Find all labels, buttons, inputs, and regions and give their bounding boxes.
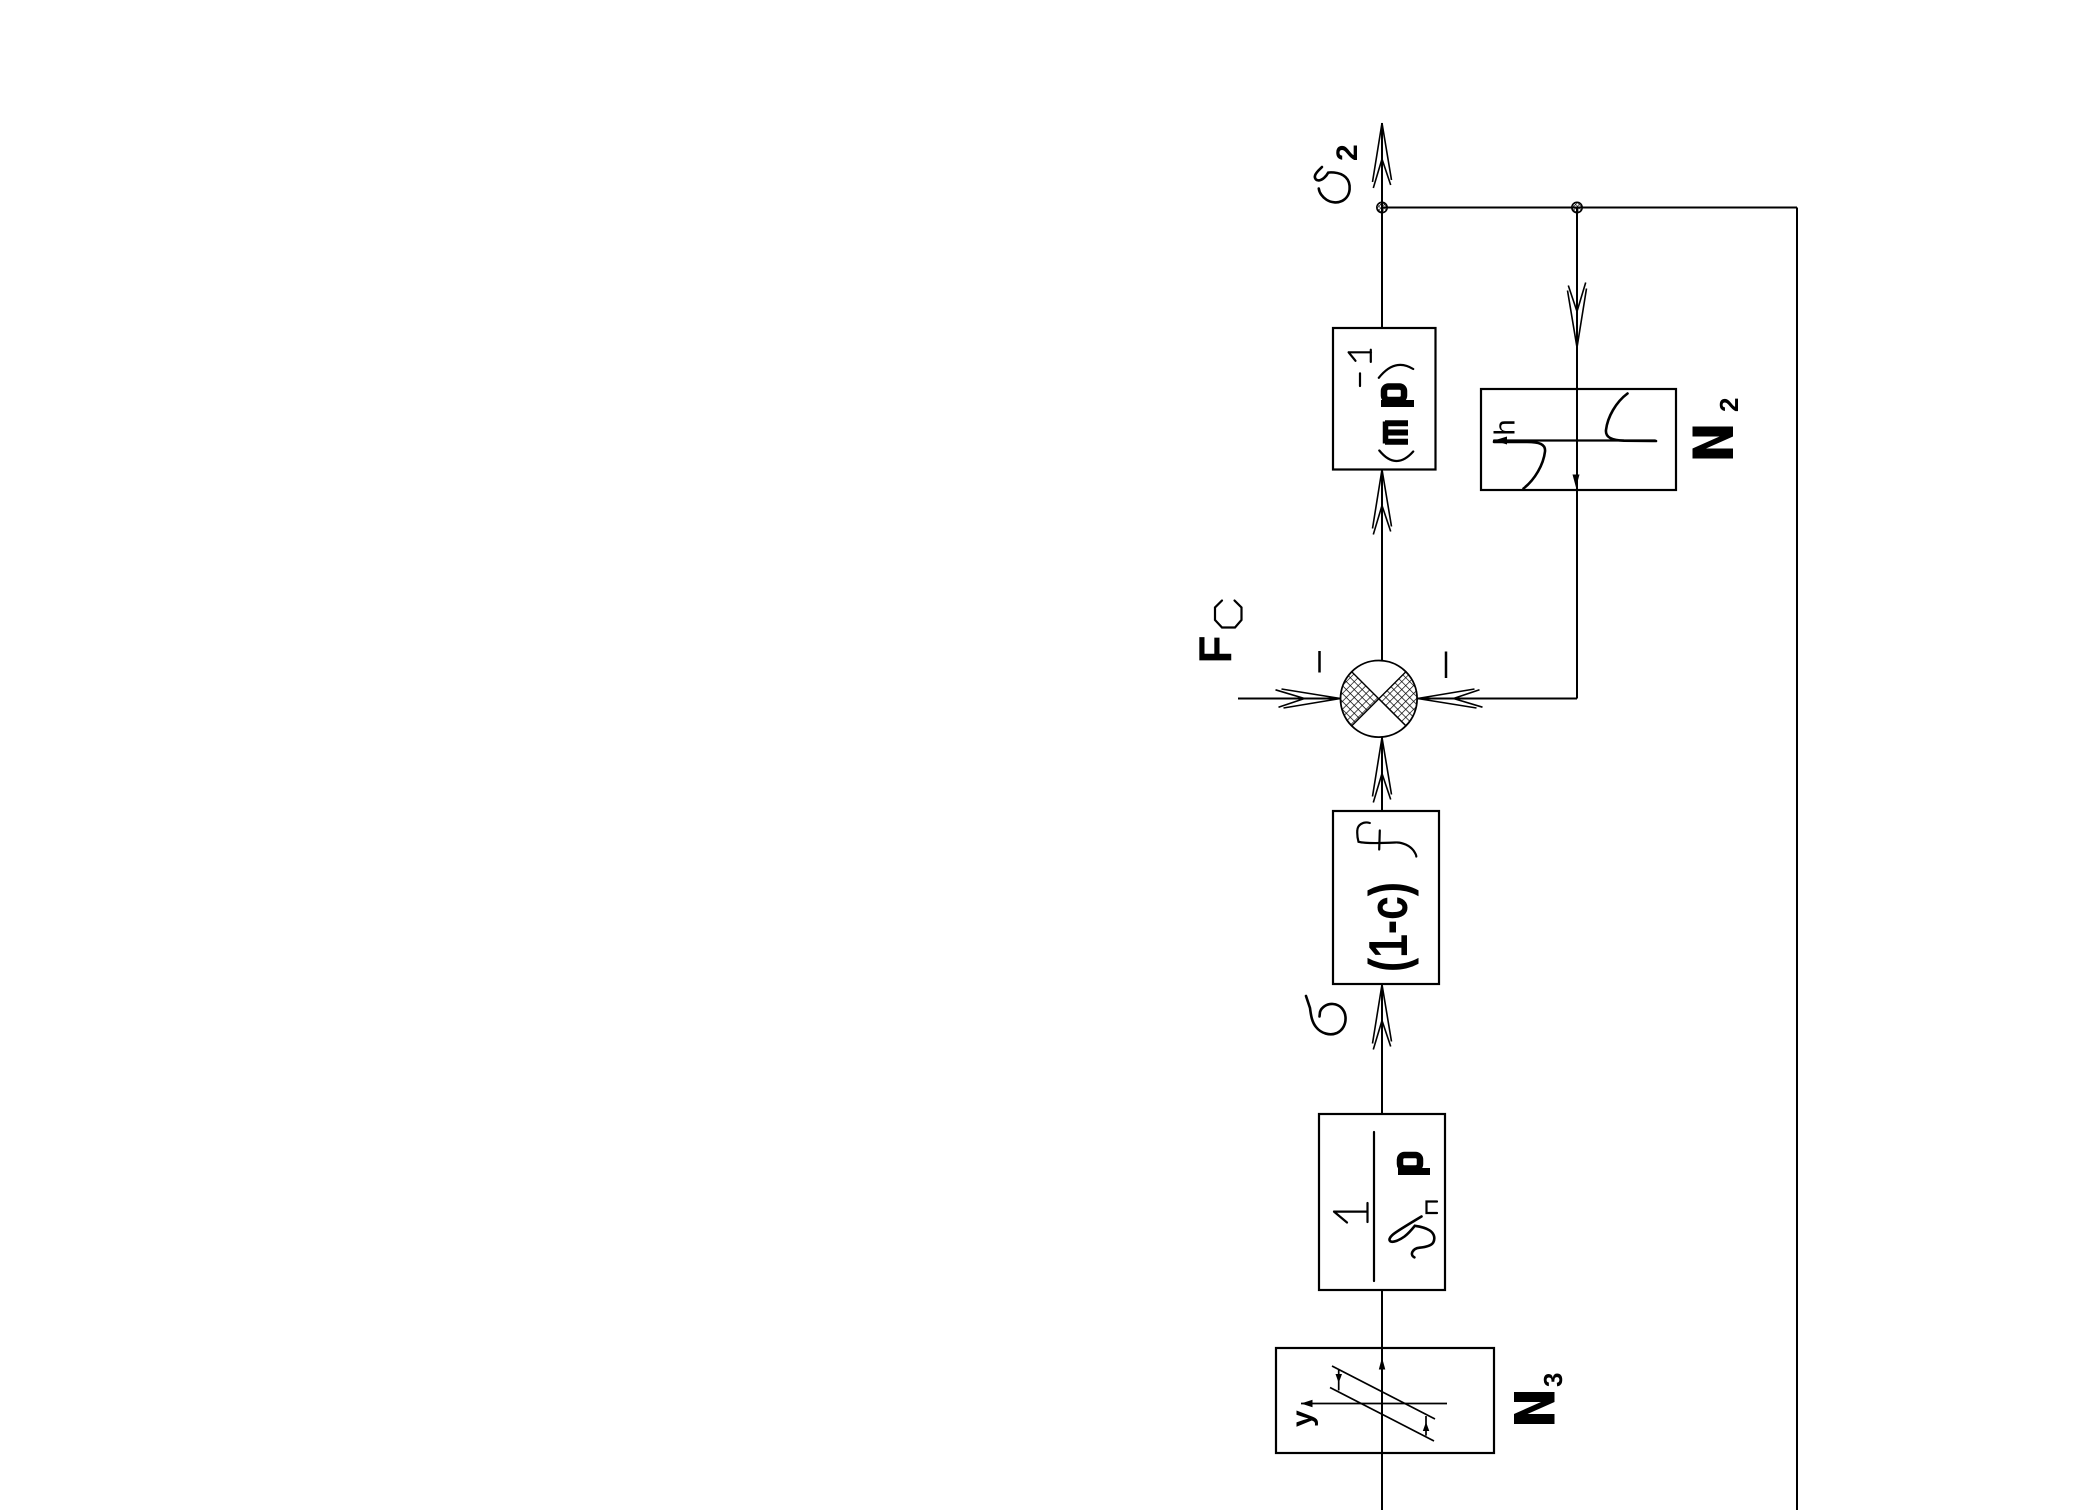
svg-text:F: F [1189, 635, 1241, 663]
svg-text:h: h [1490, 419, 1522, 435]
svg-text:y: y [1286, 1410, 1319, 1427]
svg-text:2: 2 [1714, 398, 1744, 412]
svg-text:2: 2 [1331, 144, 1364, 161]
svg-text:3: 3 [1538, 1373, 1568, 1387]
svg-text:(1-c): (1-c) [1357, 882, 1419, 972]
